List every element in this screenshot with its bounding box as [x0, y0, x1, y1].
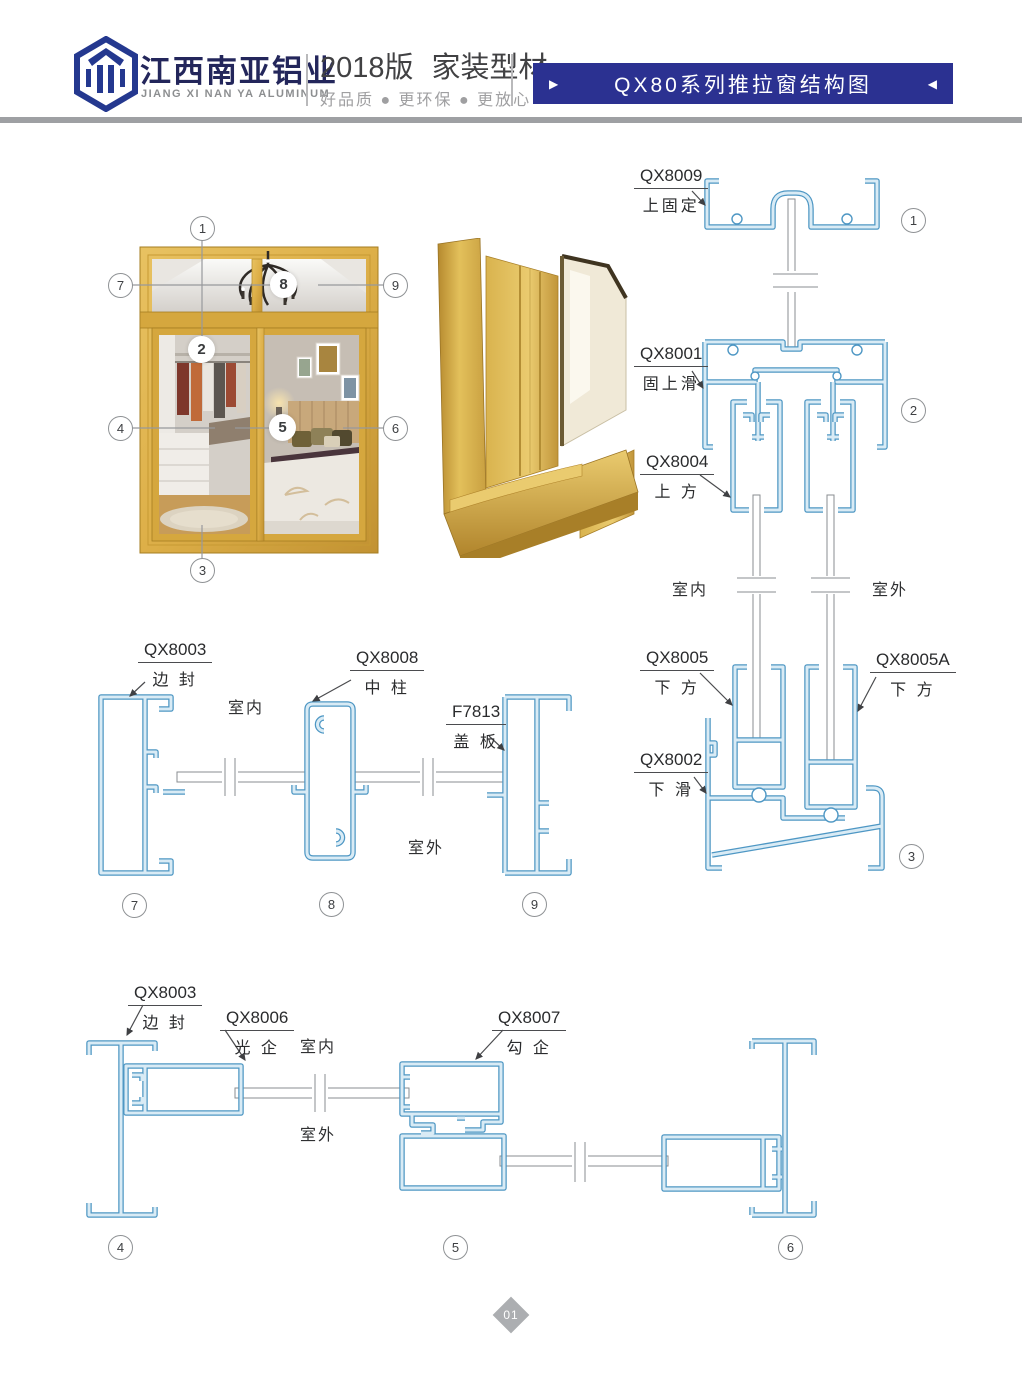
part-code: QX8002: [634, 750, 708, 773]
header-divider: [511, 54, 513, 106]
label-qx8004: QX8004 上 方: [640, 452, 714, 502]
part-code: F7813: [446, 702, 506, 725]
profile-qx8003-drawing: [101, 697, 185, 873]
section-callout-1: 1: [901, 208, 926, 233]
page-number: 01: [498, 1302, 524, 1328]
section-callout-9: 9: [522, 892, 547, 917]
part-code: QX8005A: [870, 650, 956, 673]
part-name: 固上滑: [634, 367, 708, 394]
part-name: 上 方: [640, 475, 714, 502]
callout-5: 5: [269, 414, 296, 441]
section-callout-6: 6: [778, 1235, 803, 1260]
profile-qx8008-drawing: [294, 704, 366, 858]
part-code: QX8009: [634, 166, 708, 189]
label-qx8006: QX8006 光 企: [220, 1008, 294, 1058]
profile-sash-right-drawing: [664, 1137, 782, 1189]
tagline: 好品质 ● 更环保 ● 更放心: [320, 86, 531, 110]
page-number-badge: 01: [493, 1297, 530, 1334]
section-callout-4: 4: [108, 1235, 133, 1260]
edition-title: 2018版家装型材: [320, 44, 566, 86]
header-rule: [0, 117, 1022, 123]
part-name: 下 方: [870, 673, 956, 700]
profile-qx8004-drawing: [733, 402, 853, 510]
edition-year: 2018版: [320, 52, 414, 84]
window-photo: [85, 195, 425, 605]
label-f7813: F7813 盖 板: [446, 702, 506, 752]
wardrobe-scene: [159, 335, 250, 534]
room-inside-label: 室内: [672, 576, 708, 600]
section-callout-7: 7: [122, 893, 147, 918]
profile-qx8006-drawing: [126, 1066, 241, 1113]
callout-8: 8: [270, 271, 297, 298]
part-code: QX8006: [220, 1008, 294, 1031]
part-code: QX8005: [640, 648, 714, 671]
callout-2: 2: [188, 336, 215, 363]
label-qx8003-bottom: QX8003 边 封: [128, 983, 202, 1033]
room-outside-label: 室外: [300, 1121, 336, 1145]
part-code: QX8004: [640, 452, 714, 475]
section-callout-3: 3: [899, 844, 924, 869]
label-qx8007: QX8007 勾 企: [492, 1008, 566, 1058]
part-name: 盖 板: [446, 725, 506, 752]
label-qx8003: QX8003 边 封: [138, 640, 212, 690]
part-name: 勾 企: [492, 1031, 566, 1058]
part-name: 下 滑: [634, 773, 708, 800]
callout-3: 3: [190, 558, 215, 583]
series-banner: ▶ QX80系列推拉窗结构图 ◀: [533, 63, 953, 104]
part-code: QX8001: [634, 344, 708, 367]
part-name: 中 柱: [350, 671, 424, 698]
part-name: 上固定: [634, 189, 708, 216]
label-qx8005: QX8005 下 方: [640, 648, 714, 698]
banner-left-arrow-icon: ▶: [533, 77, 574, 91]
part-code: QX8008: [350, 648, 424, 671]
part-code: QX8007: [492, 1008, 566, 1031]
room-outside-label: 室外: [408, 834, 444, 858]
callout-1: 1: [190, 216, 215, 241]
catalog-page: 江西南亚铝业 JIANG XI NAN YA ALUMINUM 2018版家装型…: [0, 0, 1022, 1377]
callout-9: 9: [383, 273, 408, 298]
part-name: 边 封: [138, 663, 212, 690]
callout-7: 7: [108, 273, 133, 298]
room-outside-label: 室外: [872, 576, 908, 600]
section-callout-2: 2: [901, 398, 926, 423]
header-divider: [306, 54, 308, 106]
banner-right-arrow-icon: ◀: [912, 77, 953, 91]
label-qx8002: QX8002 下 滑: [634, 750, 708, 800]
part-code: QX8003: [138, 640, 212, 663]
label-qx8001: QX8001 固上滑: [634, 344, 708, 394]
section-callout-8: 8: [319, 892, 344, 917]
part-name: 下 方: [640, 671, 714, 698]
callout-6: 6: [383, 416, 408, 441]
label-qx8008: QX8008 中 柱: [350, 648, 424, 698]
section-callout-5: 5: [443, 1235, 468, 1260]
room-inside-label: 室内: [228, 694, 264, 718]
profile-qx8007-drawing: [402, 1064, 504, 1188]
label-qx8009: QX8009 上固定: [634, 166, 708, 216]
room-inside-label: 室内: [300, 1033, 336, 1057]
edition-series: 家装型材: [432, 52, 548, 84]
company-name-en: JIANG XI NAN YA ALUMINUM: [141, 88, 330, 100]
profile-3d-render: [430, 238, 650, 558]
banner-title: QX80系列推拉窗结构图: [574, 69, 912, 99]
company-logo-icon: [74, 36, 138, 112]
company-name-zh: 江西南亚铝业: [140, 46, 338, 91]
callout-4: 4: [108, 416, 133, 441]
part-name: 边 封: [128, 1006, 202, 1033]
part-name: 光 企: [220, 1031, 294, 1058]
logo-emblem: [86, 48, 125, 93]
part-code: QX8003: [128, 983, 202, 1006]
label-qx8005a: QX8005A 下 方: [870, 650, 956, 700]
